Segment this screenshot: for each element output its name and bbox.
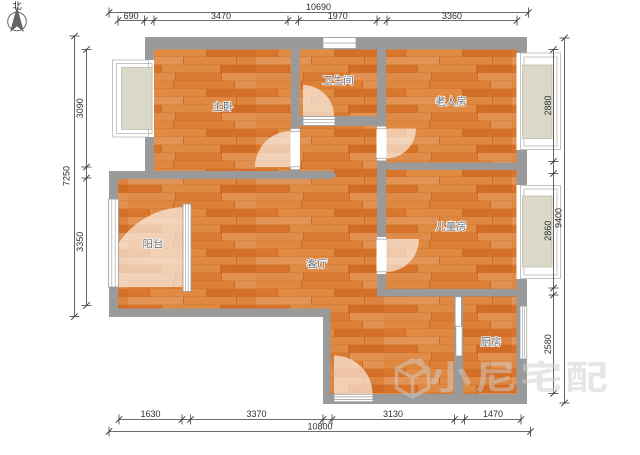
svg-text:690: 690 — [124, 11, 139, 21]
svg-text:3350: 3350 — [75, 232, 85, 252]
svg-text:2860: 2860 — [543, 221, 553, 241]
svg-text:1630: 1630 — [140, 409, 160, 419]
svg-text:3470: 3470 — [211, 11, 231, 21]
svg-text:10800: 10800 — [307, 422, 332, 432]
svg-text:2880: 2880 — [543, 95, 553, 115]
svg-text:3130: 3130 — [383, 409, 403, 419]
svg-text:3090: 3090 — [75, 98, 85, 118]
svg-text:1470: 1470 — [483, 409, 503, 419]
svg-text:3370: 3370 — [246, 409, 266, 419]
svg-text:9400: 9400 — [554, 208, 564, 228]
svg-text:3360: 3360 — [442, 11, 462, 21]
svg-text:7250: 7250 — [62, 166, 72, 186]
svg-text:2580: 2580 — [543, 334, 553, 354]
svg-text:1970: 1970 — [328, 11, 348, 21]
